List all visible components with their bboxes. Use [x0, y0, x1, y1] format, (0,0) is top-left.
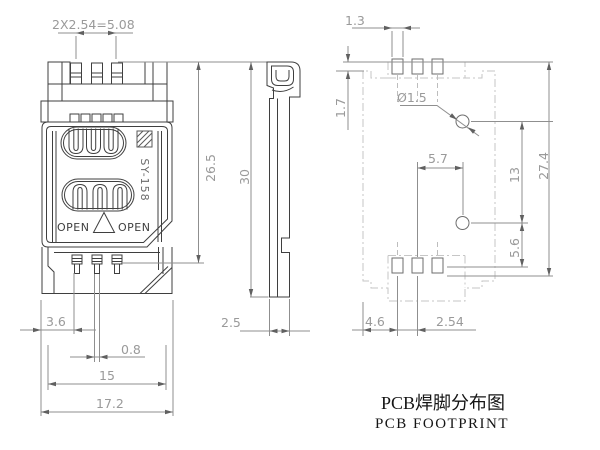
dim-front-inner-w-label: 15 [99, 368, 115, 383]
top-tab-right [145, 62, 167, 84]
shoulder [41, 101, 173, 122]
dim-fp-hole-dia-label: Ø1.5 [397, 90, 427, 105]
dim-fp-pitch-label: 2.54 [436, 314, 464, 329]
title-block: PCB焊脚分布图 PCB FOOTPRINT [375, 393, 509, 432]
side-contact-hook [272, 66, 294, 86]
brand-logo [137, 131, 152, 147]
footprint-view [363, 59, 495, 301]
front-view: SY-158 OPEN OPEN [41, 62, 173, 294]
teeth-row [70, 114, 123, 122]
mounting-hole-top [456, 115, 469, 128]
dim-front-height-label: 26.5 [203, 154, 218, 182]
part-number-label: SY-158 [138, 158, 151, 201]
dim-fp-pad-w-label: 1.3 [345, 13, 365, 28]
footprint-outline [363, 62, 495, 301]
dim-fp-edge-pad-label: 4.6 [365, 314, 385, 329]
dim-front-pin-w-label: 0.8 [121, 342, 141, 357]
dim-side-height-label: 30 [237, 169, 252, 185]
dim-side-width-label: 2.5 [221, 315, 241, 330]
engineering-drawing-page: SY-158 OPEN OPEN 2X2.54=5.08 26.5 [0, 0, 600, 450]
dim-fp-hole-dx-label: 5.7 [428, 151, 448, 166]
upper-band [48, 84, 167, 101]
top-pins [71, 63, 123, 84]
dim-fp-hole-dy-label: 13 [507, 167, 522, 183]
solder-pads-top [392, 59, 443, 74]
mounting-hole-bottom [456, 217, 469, 230]
dim-fp-total-h-label: 27.4 [536, 152, 551, 180]
open-label-right: OPEN [118, 221, 150, 234]
dim-fp-hole-bot-label: 5.6 [507, 238, 522, 258]
eject-triangle-icon [94, 213, 115, 233]
side-view-dimensions: 30 2.5 [221, 62, 310, 336]
title-english: PCB FOOTPRINT [375, 416, 509, 432]
solder-pads-bottom [392, 258, 443, 273]
front-view-dimensions: 2X2.54=5.08 26.5 3.6 0.8 15 17.2 [20, 17, 268, 416]
title-chinese: PCB焊脚分布图 [381, 393, 505, 413]
dim-fp-pad-h-label: 1.7 [333, 98, 348, 118]
technical-drawing: SY-158 OPEN OPEN 2X2.54=5.08 26.5 [0, 0, 600, 450]
lower-housing [42, 247, 172, 294]
open-label-left: OPEN [57, 221, 89, 234]
dim-front-total-w-label: 17.2 [96, 396, 124, 411]
side-view [267, 62, 300, 297]
dim-front-offset-label: 3.6 [46, 314, 66, 329]
top-tab-left [48, 62, 70, 84]
side-profile [267, 62, 300, 297]
dim-top-pitch-label: 2X2.54=5.08 [52, 17, 135, 32]
contact-window-top [61, 127, 126, 159]
contact-window-bottom [62, 179, 134, 211]
